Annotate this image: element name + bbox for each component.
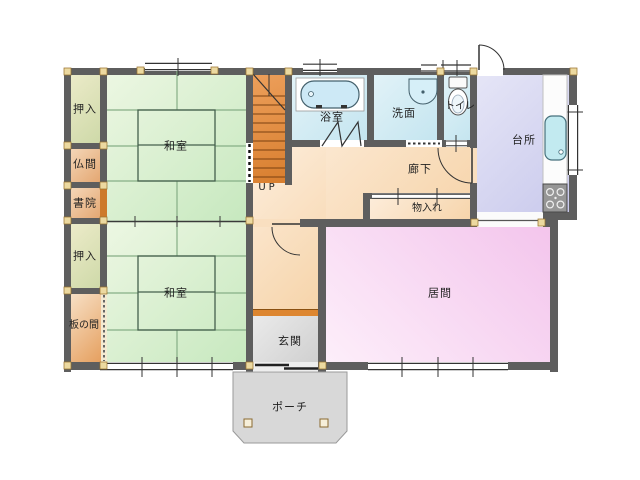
wall (437, 68, 444, 147)
wall (318, 219, 477, 227)
wall (64, 218, 107, 224)
porch-post (244, 419, 252, 427)
wall (100, 68, 107, 186)
label-itanoma: 板の間 (69, 321, 99, 331)
wall (285, 68, 292, 185)
label-living: 居間 (428, 288, 452, 299)
wall (64, 288, 107, 294)
wall (318, 219, 326, 372)
wall (64, 182, 107, 188)
tokonoma-edge (100, 186, 107, 222)
wall (246, 68, 253, 372)
label-closet-top: 押入 (73, 104, 97, 115)
wall (100, 222, 107, 294)
label-toilet: トイレ (445, 102, 475, 112)
wall (550, 219, 558, 372)
wall (64, 68, 577, 75)
label-washroom: 洗面 (392, 108, 416, 119)
wall (367, 68, 374, 147)
wall (64, 362, 326, 370)
wall (363, 193, 474, 199)
wall (285, 140, 477, 147)
floor-plan: 押入 仏間 書院 押入 板の間 和室 和室 浴室 洗面 トイレ 台所 廊下 物入… (0, 0, 640, 480)
label-shoin: 書院 (73, 198, 97, 209)
label-porch: ポーチ (272, 402, 308, 413)
room-bathroom (290, 72, 371, 147)
label-washitsu-top: 和室 (164, 141, 188, 152)
label-stairs-up: UP (258, 183, 277, 193)
porch-post (320, 419, 328, 427)
staircase (253, 71, 287, 183)
label-kitchen: 台所 (512, 135, 536, 146)
wall (64, 143, 107, 149)
label-butsuma: 仏間 (73, 159, 97, 170)
wall (300, 219, 318, 227)
label-bathroom: 浴室 (320, 112, 344, 123)
label-storage: 物入れ (412, 204, 442, 214)
label-washitsu-bottom: 和室 (164, 288, 188, 299)
wall (569, 68, 577, 220)
wall (318, 362, 558, 370)
label-genkan: 玄関 (278, 336, 302, 347)
label-corridor: 廊下 (408, 164, 432, 175)
label-closet-bottom: 押入 (73, 251, 97, 262)
